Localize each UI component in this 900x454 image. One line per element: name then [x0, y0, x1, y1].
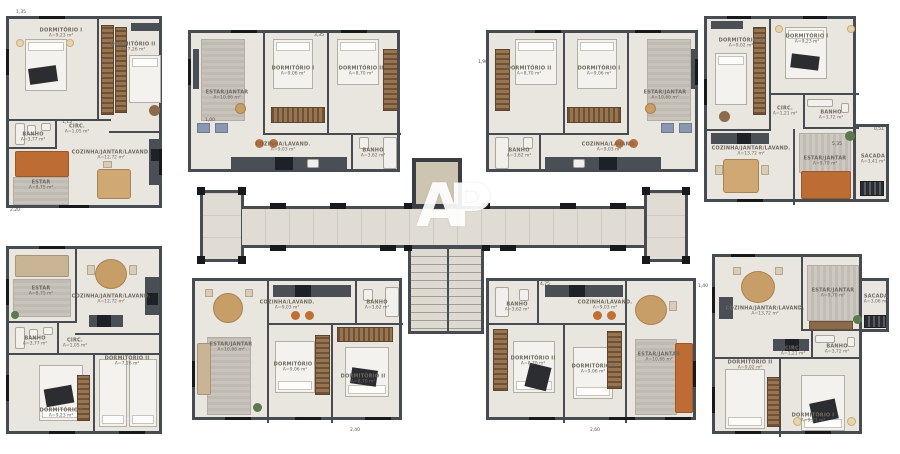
window-marker: [529, 417, 555, 420]
wardrobe: [567, 107, 621, 123]
room-area: A=9,23 m²: [40, 413, 83, 418]
single-bed: [715, 53, 747, 105]
column-marker: [238, 256, 246, 264]
column-marker: [197, 187, 205, 195]
room-area: A=9,03 m²: [260, 305, 315, 310]
stove: [97, 315, 111, 327]
nightstand: [847, 25, 855, 33]
door-marker: [610, 245, 626, 251]
sink: [807, 99, 833, 107]
room-label-banho: BANHOA=3,77 m²: [21, 131, 46, 142]
room-area: A=8,75 m²: [29, 185, 54, 190]
single-bed: [129, 55, 161, 103]
room-label-estar-jantar: ESTAR/JANTARA=9,70 m²: [804, 155, 847, 166]
chair: [87, 265, 95, 275]
interior-wall: [109, 131, 162, 133]
plant: [845, 131, 855, 141]
unit-top-far-left: DORMITÓRIO IA=9,23 m² DORMITÓRIO IIA=7,2…: [6, 16, 162, 208]
stove: [737, 133, 751, 144]
chair: [245, 289, 253, 297]
chair: [775, 267, 783, 275]
room-label-estar: ESTARA=8,75 m²: [29, 179, 54, 190]
room-label-circ: CIRC.A=1,05 m²: [65, 123, 90, 134]
interior-wall: [263, 133, 401, 135]
interior-wall: [793, 129, 795, 205]
interior-wall: [327, 33, 329, 135]
staircase: [408, 246, 484, 334]
room-area: A=10,66 m²: [210, 347, 253, 352]
room-area: A=8,75 m²: [29, 291, 54, 296]
room-label-cozinha: COZINHA/JANTAR/LAVAND.A=13,72 m²: [712, 145, 791, 156]
sideboard: [809, 321, 853, 330]
pouf: [719, 111, 730, 122]
stair-divider: [447, 249, 449, 331]
chair: [129, 265, 137, 275]
wardrobe: [115, 27, 127, 113]
room-area: A=9,02 m²: [719, 43, 764, 48]
room-area: A=3,62 m²: [361, 153, 386, 158]
unit-bottom-mid-left: ESTAR/JANTARA=10,66 m² COZINHA/LAVAND.A=…: [192, 278, 402, 420]
column-marker: [404, 245, 412, 251]
room-label-dormitorio-1: DORMITÓRIO IA=9,23 m²: [40, 27, 83, 38]
interior-wall: [93, 355, 95, 434]
window-marker: [635, 30, 661, 33]
single-bed: [725, 369, 765, 429]
room-area: A=3,62 m²: [505, 307, 530, 312]
single-bed: [129, 359, 157, 427]
room-area: A=9,02 m²: [728, 365, 773, 370]
room-label-banho: BANHOA=3,62 m²: [361, 147, 386, 158]
corridor-lobby-left: [200, 190, 244, 262]
room-area: A=3,77 m²: [21, 137, 46, 142]
interior-wall: [489, 133, 629, 135]
wardrobe: [383, 49, 398, 111]
window-marker: [341, 30, 367, 33]
room-area: A=3,62 m²: [365, 305, 390, 310]
room-label-sacada: SACADAA=3,41 m²: [861, 153, 886, 164]
wardrobe: [101, 25, 114, 115]
sink: [41, 123, 51, 131]
wardrobe: [271, 107, 325, 123]
wardrobe: [315, 335, 330, 395]
double-bed: [515, 39, 557, 85]
room-label-circ: CIRC.A=1,21 m²: [773, 105, 798, 116]
window-marker: [119, 431, 145, 434]
door-marker: [560, 203, 576, 209]
room-area: A=1,21 m²: [773, 111, 798, 116]
room-label-dormitorio-2: DORMITÓRIO IIA=9,02 m²: [728, 359, 773, 370]
room-area: A=9,23 m²: [786, 39, 829, 44]
room-area: A=9,70 m²: [812, 293, 855, 298]
room-label-dormitorio-1: DORMITÓRIO IA=9,23 m²: [786, 33, 829, 44]
kitchen-counter: [273, 285, 351, 297]
stove: [569, 285, 585, 297]
column-marker: [197, 256, 205, 264]
room-area: A=9,06 m²: [572, 369, 615, 374]
dimension-label: 3,35: [314, 33, 324, 38]
dimension-label: 0,51: [874, 127, 884, 132]
room-label-dormitorio-1: DORMITÓRIO IA=9,06 m²: [572, 363, 615, 374]
window-marker: [39, 16, 65, 19]
chair: [661, 123, 674, 133]
chair: [761, 165, 769, 175]
room-label-dormitorio-2: DORMITÓRIO IIA=8,70 m²: [507, 65, 552, 76]
window-marker: [365, 417, 391, 420]
room-area: A=8,70 m²: [339, 71, 384, 76]
room-label-dormitorio-1: DORMITÓRIO IA=9,06 m²: [272, 65, 315, 76]
wardrobe: [495, 49, 510, 111]
room-label-dormitorio-1: DORMITÓRIO IA=9,23 m²: [792, 412, 835, 423]
interior-wall: [97, 19, 99, 119]
double-bed: [577, 39, 617, 89]
column-marker: [682, 187, 690, 195]
nightstand: [847, 417, 856, 426]
wardrobe: [337, 327, 393, 342]
interior-wall: [267, 323, 403, 325]
window-marker: [609, 417, 635, 420]
sofa: [15, 255, 69, 277]
dimension-label: 5,35: [832, 142, 842, 147]
column-marker: [642, 256, 650, 264]
bar-stool: [291, 311, 300, 320]
chair: [215, 123, 228, 133]
plant: [11, 311, 19, 319]
room-label-banho: BANHOA=3,62 m²: [507, 147, 532, 158]
nightstand: [16, 39, 24, 47]
pouf: [149, 105, 160, 116]
room-area: A=3,62 m²: [507, 153, 532, 158]
room-area: A=12,72 m²: [72, 299, 151, 304]
window-marker: [295, 417, 321, 420]
dimension-label: 1,90: [478, 60, 488, 65]
nightstand: [775, 25, 783, 33]
room-label-estar-jantar: ESTAR/JANTARA=10,66 m²: [210, 341, 253, 352]
window-marker: [231, 30, 257, 33]
sink: [307, 159, 319, 168]
sacada-top-right: SACADAA=3,41 m²: [853, 124, 889, 202]
interior-wall: [9, 147, 55, 149]
rug: [799, 133, 851, 173]
room-label-dormitorio-2: DORMITÓRIO IIA=9,02 m²: [719, 37, 764, 48]
room-label-dormitorio-1: DORMITÓRIO IA=9,23 m²: [40, 407, 83, 418]
corridor-lobby-right: [644, 190, 688, 262]
room-label-banho: BANHOA=3,62 m²: [505, 301, 530, 312]
interior-wall: [539, 133, 541, 172]
room-label-circ: CIRC.A=1,21 m²: [781, 345, 806, 356]
dining-table: [635, 295, 667, 325]
room-area: A=1,21 m²: [781, 351, 806, 356]
window-marker: [727, 16, 751, 19]
sink: [43, 327, 53, 335]
window-marker: [6, 49, 9, 75]
room-label-cozinha: COZINHA/JANTAR/LAVAND.A=13,72 m²: [726, 305, 805, 316]
window-marker: [704, 79, 707, 105]
room-label-estar-jantar: ESTAR/JANTARA=10,66 m²: [206, 89, 249, 100]
room-label-sacada: SACADAA=3,06 m²: [864, 293, 889, 304]
interior-wall: [351, 133, 353, 172]
interior-wall: [803, 95, 805, 129]
room-label-dormitorio-2: DORMITÓRIO IIA=8,70 m²: [511, 355, 556, 366]
dining-table: [97, 169, 131, 199]
dimension-label: 1,35: [16, 10, 26, 15]
chair: [103, 161, 112, 168]
room-area: A=3,06 m²: [864, 299, 889, 304]
unit-bottom-far-right: COZINHA/JANTAR/LAVAND.A=13,72 m² ESTAR/J…: [712, 254, 862, 434]
sofa: [801, 171, 851, 199]
desk: [711, 21, 743, 29]
room-area: A=12,72 m²: [72, 155, 151, 160]
dimension-label: 2,40: [350, 428, 360, 433]
door-marker: [380, 245, 396, 251]
dimension-label: 4,75: [540, 282, 550, 287]
room-area: A=8,70 m²: [511, 361, 556, 366]
room-area: A=13,72 m²: [726, 311, 805, 316]
window-marker: [695, 59, 698, 85]
interior-wall: [769, 19, 771, 129]
ap-watermark-logo: AP: [416, 176, 478, 236]
room-area: A=3,41 m²: [861, 159, 886, 164]
room-label-banho: BANHOA=3,62 m²: [365, 299, 390, 310]
unit-top-mid-left: ESTAR/JANTARA=10,66 m² DORMITÓRIO IA=9,0…: [188, 30, 400, 172]
dining-table: [723, 159, 759, 193]
interior-wall: [57, 321, 59, 355]
room-label-cozinha: COZINHA/JANTAR/LAVAND.A=12,72 m²: [72, 149, 151, 160]
room-area: A=9,03 m²: [578, 305, 633, 310]
room-label-cozinha: COZINHA/LAVAND.A=9,03 m²: [260, 299, 315, 310]
room-area: A=9,06 m²: [272, 71, 315, 76]
window-marker: [735, 431, 761, 434]
column-marker: [238, 187, 246, 195]
unit-bottom-far-left: ESTARA=8,75 m² COZINHA/JANTAR/LAVAND.A=1…: [6, 246, 162, 434]
stove: [599, 157, 617, 170]
plant: [853, 315, 862, 324]
room-label-estar-jantar: ESTAR/JANTARA=10,66 m²: [638, 351, 681, 362]
room-label-dormitorio-1: DORMITÓRIO IA=9,06 m²: [578, 65, 621, 76]
desk: [131, 23, 159, 31]
stove: [275, 157, 293, 170]
interior-wall: [9, 119, 111, 121]
room-area: A=7,26 m²: [111, 47, 156, 52]
window-marker: [693, 361, 696, 387]
interior-wall: [355, 281, 357, 323]
interior-wall: [803, 127, 859, 129]
room-label-banho: BANHOA=3,72 m²: [825, 343, 850, 354]
dimension-label: 1,00: [205, 118, 215, 123]
double-bed: [273, 39, 313, 89]
column-marker: [682, 256, 690, 264]
room-area: A=3,72 m²: [825, 349, 850, 354]
interior-wall: [263, 33, 265, 135]
room-area: A=8,70 m²: [507, 71, 552, 76]
interior-wall: [55, 119, 57, 149]
interior-wall: [563, 325, 565, 423]
side-table: [235, 103, 246, 114]
room-label-dormitorio-2: DORMITÓRIO IIA=7,26 m²: [111, 41, 156, 52]
door-marker: [500, 245, 516, 251]
door-marker: [270, 245, 286, 251]
wardrobe: [493, 329, 508, 391]
sacada-bottom-right: SACADAA=3,06 m²: [859, 278, 889, 332]
room-area: A=3,77 m²: [23, 341, 48, 346]
column-marker: [642, 187, 650, 195]
tv-panel: [193, 49, 199, 89]
unit-top-far-right: DORMITÓRIO IIA=9,02 m² DORMITÓRIO IA=9,2…: [704, 16, 856, 202]
window-marker: [737, 199, 763, 202]
room-label-circ: CIRC.A=1,05 m²: [63, 337, 88, 348]
window-marker: [712, 287, 715, 313]
window-marker: [159, 149, 162, 175]
chair: [197, 123, 210, 133]
window-marker: [188, 59, 191, 85]
interior-wall: [331, 325, 333, 423]
bar-stool: [607, 311, 616, 320]
room-area: A=10,66 m²: [644, 95, 687, 100]
bar-stool: [305, 311, 314, 320]
unit-top-mid-right: DORMITÓRIO IIA=8,70 m² DORMITÓRIO IA=9,0…: [486, 30, 698, 172]
interior-wall: [769, 93, 859, 95]
interior-wall: [627, 33, 629, 135]
column-marker: [482, 203, 490, 209]
interior-wall: [9, 321, 77, 323]
room-area: A=9,23 m²: [40, 33, 83, 38]
stove: [295, 285, 311, 297]
door-marker: [610, 203, 626, 209]
window-marker: [39, 246, 65, 249]
interior-wall: [801, 257, 803, 329]
single-bed: [99, 359, 127, 427]
dining-table: [213, 293, 243, 323]
room-label-cozinha: COZINHA/LAVAND.A=9,03 m²: [256, 141, 311, 152]
chair: [679, 123, 692, 133]
window-marker: [712, 387, 715, 413]
room-label-estar-jantar: ESTAR/JANTARA=9,70 m²: [812, 287, 855, 298]
room-label-estar-jantar: ESTAR/JANTARA=10,66 m²: [644, 89, 687, 100]
room-label-cozinha: COZINHA/JANTAR/LAVAND.A=12,72 m²: [72, 293, 151, 304]
room-label-dormitorio-2: DORMITÓRIO IIA=7,26 m²: [105, 355, 150, 366]
room-area: A=7,26 m²: [105, 361, 150, 366]
window-marker: [6, 375, 9, 401]
floor-plan-canvas: DORMITÓRIO IA=9,23 m² DORMITÓRIO IIA=7,2…: [0, 0, 900, 454]
room-area: A=9,03 m²: [256, 147, 311, 152]
dining-table: [95, 259, 127, 289]
window-marker: [535, 30, 561, 33]
door-marker: [270, 203, 286, 209]
window-marker: [192, 361, 195, 387]
interior-wall: [75, 249, 77, 321]
sink: [815, 335, 835, 343]
window-marker: [665, 417, 691, 420]
toilet: [519, 289, 529, 301]
window-marker: [6, 279, 9, 305]
room-area: A=3,72 m²: [819, 115, 844, 120]
room-area: A=13,72 m²: [712, 151, 791, 156]
room-label-estar: ESTARA=8,75 m²: [29, 285, 54, 296]
room-label-cozinha: COZINHA/LAVAND.A=9,03 m²: [578, 299, 633, 310]
chair: [669, 301, 677, 311]
interior-wall: [75, 333, 162, 335]
interior-wall: [563, 33, 565, 135]
column-marker: [404, 203, 412, 209]
double-bed: [337, 39, 379, 85]
condenser-grill: [864, 315, 886, 328]
room-label-banho: BANHOA=3,72 m²: [819, 109, 844, 120]
room-label-dormitorio-1: DORMITÓRIO IA=9,06 m²: [274, 361, 317, 372]
room-label-banho: BANHOA=3,77 m²: [23, 335, 48, 346]
chair: [733, 267, 741, 275]
dimension-label: 1,40: [698, 284, 708, 289]
room-area: A=9,70 m²: [804, 161, 847, 166]
room-area: A=1,05 m²: [63, 343, 88, 348]
room-area: A=8,70 m²: [341, 379, 386, 384]
window-marker: [803, 16, 827, 19]
wardrobe: [767, 377, 780, 427]
room-area: A=1,05 m²: [65, 129, 90, 134]
interior-wall: [537, 281, 539, 323]
sink: [573, 159, 585, 168]
dimension-label: 1,15: [62, 120, 72, 125]
room-area: A=9,06 m²: [578, 71, 621, 76]
nightstand: [66, 39, 74, 47]
window-marker: [225, 417, 251, 420]
unit-bottom-mid-right: BANHOA=3,62 m² COZINHA/LAVAND.A=9,03 m² …: [486, 278, 696, 420]
window-marker: [59, 205, 89, 208]
side-table: [645, 103, 656, 114]
bar-stool: [593, 311, 602, 320]
column-marker: [482, 245, 490, 251]
sofa: [15, 151, 69, 177]
wardrobe: [607, 331, 622, 389]
room-area: A=9,23 m²: [792, 418, 835, 423]
dining-table: [741, 271, 775, 303]
room-label-dormitorio-2: DORMITÓRIO IIA=8,70 m²: [339, 65, 384, 76]
room-label-dormitorio-2: DORMITÓRIO IIA=8,70 m²: [341, 373, 386, 384]
room-area: A=10,66 m²: [638, 357, 681, 362]
window-marker: [731, 254, 755, 257]
condenser-grill: [860, 181, 884, 196]
room-area: A=9,03 m²: [582, 147, 637, 152]
dimension-label: 2,20: [10, 208, 20, 213]
interior-wall: [707, 129, 771, 131]
chair: [715, 165, 723, 175]
window-marker: [49, 431, 75, 434]
interior-wall: [489, 323, 627, 325]
chair: [205, 289, 213, 297]
room-label-cozinha: COZINHA/LAVAND.A=9,03 m²: [582, 141, 637, 152]
plant: [253, 403, 262, 412]
dimension-label: 2,60: [590, 428, 600, 433]
interior-wall: [811, 331, 813, 357]
door-marker: [330, 203, 346, 209]
room-area: A=9,06 m²: [274, 367, 317, 372]
room-area: A=10,66 m²: [206, 95, 249, 100]
window-marker: [805, 431, 831, 434]
